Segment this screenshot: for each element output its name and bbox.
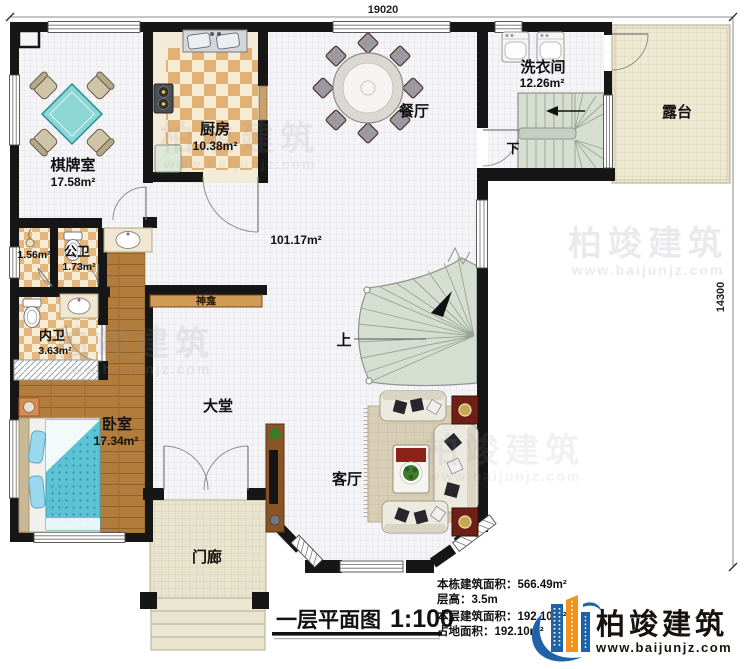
chess-room-label: 棋牌室 <box>50 156 95 174</box>
living-room-label: 客厅 <box>331 470 362 488</box>
porch-deck <box>150 500 266 650</box>
washing-machine <box>537 32 564 62</box>
tv-cabinet <box>266 424 284 532</box>
pillow <box>28 475 45 508</box>
laundry-area: 12.26m² <box>520 76 565 90</box>
plant <box>269 428 281 440</box>
terrace-label: 露台 <box>662 103 692 121</box>
watermark: 柏竣建筑 www.baijunjz.com <box>425 431 585 484</box>
stairs-up-label: 上 <box>336 332 351 349</box>
sofa-bottom <box>382 501 448 533</box>
logo-url: www.baijunjz.com <box>595 640 732 655</box>
porch-step <box>151 598 265 611</box>
plan-title: 一层平面图 <box>276 609 381 632</box>
stairs-down-label: 下 <box>506 141 519 156</box>
window-laundry-top <box>495 22 522 33</box>
porch-step <box>151 624 265 637</box>
window-bedroom-bottom <box>34 533 125 543</box>
private-bath-label: 内卫 <box>39 328 65 343</box>
shower-room-area: 1.56m² <box>17 249 51 261</box>
watermark-url: www.baijunjz.com <box>428 468 582 484</box>
shrine-label: 神龛 <box>196 295 217 308</box>
info-line: 本栋建筑面积：566.49m² <box>437 577 567 591</box>
kitchen-label: 厨房 <box>200 120 230 138</box>
toilet <box>23 299 41 328</box>
card-table-set <box>29 71 116 158</box>
porch-column <box>140 592 157 609</box>
coffee-table <box>393 445 429 493</box>
bedroom-label: 卧室 <box>102 415 132 433</box>
title-block: 一层平面图 1:100 <box>272 605 454 639</box>
floor-plan-canvas: 柏竣建筑 www.baijunjz.com 柏竣建筑 www.baijunjz.… <box>0 0 750 669</box>
watermark-url: www.baijunjz.com <box>58 361 212 377</box>
floor-plan-page: 柏竣建筑 www.baijunjz.com 柏竣建筑 www.baijunjz.… <box>0 0 750 669</box>
watermark: 柏竣建筑 www.baijunjz.com <box>55 324 215 377</box>
chess-room-area: 17.58m² <box>51 175 96 189</box>
window-bedroom-left <box>10 420 20 498</box>
watermark: 柏竣建筑 www.baijunjz.com <box>568 224 728 278</box>
stove <box>154 84 173 113</box>
window-bay-bottom <box>340 561 403 572</box>
window-laundry-terrace <box>604 95 613 168</box>
porch-label: 门廊 <box>192 548 222 566</box>
porch-step <box>151 611 265 624</box>
dimension-top-value: 19020 <box>368 4 399 16</box>
lobby-label: 大堂 <box>203 397 233 415</box>
company-logo: 柏竣建筑 www.baijunjz.com <box>532 595 732 661</box>
washing-machine <box>502 32 529 62</box>
window-chess-top <box>48 22 140 33</box>
public-bath-label: 公卫 <box>64 244 90 259</box>
watermark-url: www.baijunjz.com <box>571 262 725 278</box>
laundry-label: 洗衣间 <box>520 58 565 76</box>
logo-name: 柏竣建筑 <box>596 607 728 641</box>
kitchen-area: 10.38m² <box>193 139 238 153</box>
kitchen-sink <box>183 30 247 52</box>
stairs-down-laundry <box>518 93 607 172</box>
corner-column <box>19 31 39 47</box>
nightstand <box>19 398 39 416</box>
info-line: 占地面积：192.10m² <box>437 624 544 638</box>
vanity-sink <box>104 228 152 252</box>
info-line: 本层建筑面积：192.10m² <box>437 609 567 623</box>
dining-label: 餐厅 <box>399 102 429 120</box>
watermark-url: www.baijunjz.com <box>163 156 317 172</box>
private-bath-area: 3.63m² <box>38 345 72 357</box>
kitchen-sliding-door <box>259 86 267 120</box>
info-block: 本栋建筑面积：566.49m² 层高：3.5m 本层建筑面积：192.10m² … <box>436 577 567 638</box>
sofa-top <box>380 391 446 421</box>
watermark-text: 柏竣建筑 <box>55 324 215 363</box>
window-hall-right <box>477 200 488 268</box>
porch-column <box>252 592 269 609</box>
dimension-right-value: 14300 <box>715 282 727 313</box>
window-dining-top <box>333 22 450 33</box>
watermark: 柏竣建筑 www.baijunjz.com <box>160 119 320 172</box>
window-chess-left <box>10 75 20 145</box>
watermark-text: 柏竣建筑 <box>425 431 585 470</box>
public-bath-area: 1.73m² <box>62 261 96 273</box>
shrine-wall <box>145 285 267 295</box>
porch-step <box>151 637 265 650</box>
bed <box>19 418 100 532</box>
watermark-text: 柏竣建筑 <box>160 119 320 158</box>
watermark-text: 柏竣建筑 <box>568 224 728 263</box>
bedroom-area: 17.34m² <box>94 434 139 448</box>
hall-area-label: 101.17m² <box>270 233 321 247</box>
bath-counter-sink <box>60 294 98 318</box>
info-line: 层高：3.5m <box>436 592 498 606</box>
lamp-table <box>452 508 478 536</box>
tv <box>269 450 278 504</box>
lamp-table <box>452 396 478 424</box>
